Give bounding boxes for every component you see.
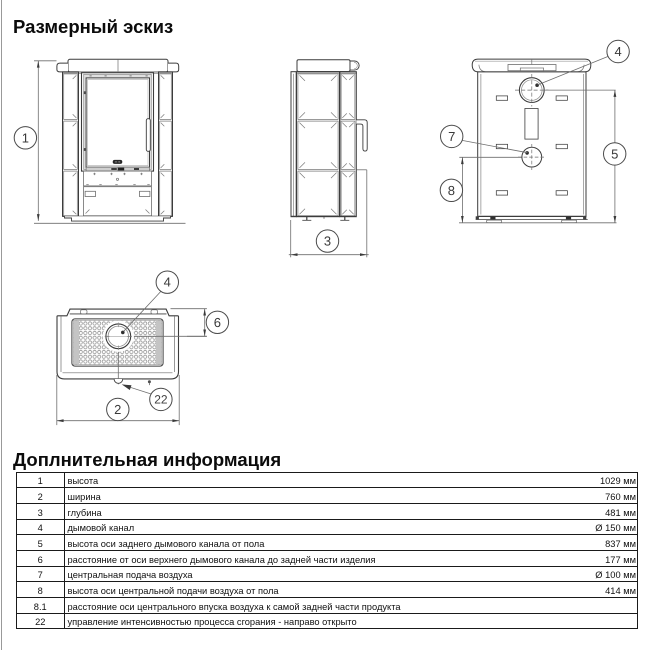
svg-text:4: 4 — [164, 275, 171, 290]
svg-text:1: 1 — [22, 130, 29, 145]
svg-text:5: 5 — [611, 146, 618, 161]
svg-text:22: 22 — [154, 393, 168, 407]
svg-text:6: 6 — [214, 315, 221, 330]
svg-text:4: 4 — [614, 44, 621, 59]
svg-text:8: 8 — [448, 183, 455, 198]
svg-text:7: 7 — [448, 129, 455, 144]
svg-text:3: 3 — [324, 234, 331, 249]
svg-text:2: 2 — [114, 402, 121, 417]
